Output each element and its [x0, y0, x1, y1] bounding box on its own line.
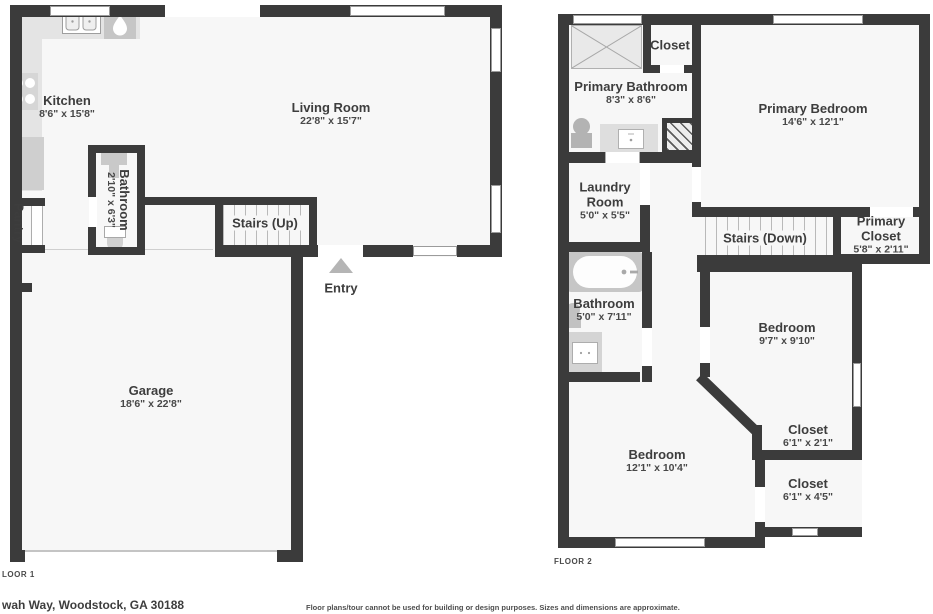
room-name: Closet — [783, 422, 833, 437]
window — [50, 6, 110, 16]
room-dims: 6'1" x 4'5" — [783, 491, 833, 504]
room-dims: 12'1" x 10'4" — [626, 462, 688, 475]
bathroom-sink-icon — [101, 152, 127, 165]
wall — [10, 283, 32, 292]
closet-door-opening — [755, 487, 765, 522]
room-dims: 14'6" x 12'1" — [758, 116, 867, 129]
window — [773, 15, 863, 24]
room-label-laundry: Laundry Room 5'0" x 5'5" — [566, 180, 644, 223]
room-label-bathroom-1: Bathroom 2'10" x 6'3" — [104, 169, 132, 230]
primary-bathroom-door-opening — [605, 152, 640, 163]
property-address: wah Way, Woodstock, GA 30188 — [2, 598, 184, 612]
bathroom-door-opening — [89, 197, 97, 227]
room-name: Stairs (Up) — [229, 216, 301, 231]
room-dims: 5'0" x 7'11" — [573, 311, 634, 324]
closet-bottom-door — [792, 528, 818, 536]
room-name: Primary Bedroom — [758, 101, 867, 116]
window — [350, 6, 445, 16]
room-label-bathroom-2: Bathroom 5'0" x 7'11" — [573, 296, 634, 324]
room-dims: 6'1" x 2'1" — [783, 437, 833, 450]
room-name: Bedroom — [626, 447, 688, 462]
room-dims: 8'6" x 15'8" — [39, 108, 95, 121]
wall — [558, 14, 569, 548]
window — [491, 185, 501, 233]
shower-icon — [571, 25, 642, 69]
wall — [697, 262, 862, 272]
wall — [558, 152, 605, 163]
room-label-closet-bottom: Closet 6'1" x 4'5" — [783, 476, 833, 504]
wall — [558, 242, 650, 252]
room-label-stairs-up: Stairs (Up) — [229, 216, 301, 231]
room-name: Closet — [783, 476, 833, 491]
garage-door — [25, 550, 277, 562]
toilet-base — [571, 133, 592, 148]
bedroom-door-opening — [700, 327, 710, 363]
bathroom2-sink-icon — [568, 332, 602, 372]
refrigerator-icon — [21, 137, 44, 190]
room-name: Bathroom — [573, 296, 634, 311]
room-label-primary-closet: Primary Closet 5'8" x 2'11" — [841, 214, 921, 257]
window — [615, 538, 705, 547]
room-dims: 5'8" x 2'11" — [841, 244, 921, 257]
room-name: Bedroom — [758, 320, 815, 335]
room-name: Kitchen — [39, 93, 95, 108]
room-label-pantry: Pantry — [12, 203, 27, 243]
room-name: Living Room — [292, 100, 371, 115]
vanity-sink-icon — [618, 129, 644, 149]
room-label-primary-bathroom: Primary Bathroom 8'3" x 8'6" — [574, 79, 687, 107]
room-label-bedroom-mid: Bedroom 9'7" x 9'10" — [758, 320, 815, 348]
window — [573, 15, 642, 24]
wall — [88, 145, 96, 197]
room-name: Stairs (Down) — [720, 231, 810, 246]
wall — [692, 14, 701, 167]
wall — [700, 272, 710, 327]
floor1-caption: LOOR 1 — [2, 570, 35, 579]
window — [853, 363, 861, 407]
wall — [642, 366, 652, 382]
wall — [642, 252, 652, 328]
wall — [143, 197, 317, 205]
room-dims: 22'8" x 15'7" — [292, 115, 371, 128]
room-name: Pantry — [12, 203, 27, 243]
window — [165, 5, 260, 17]
wall — [88, 247, 145, 255]
wall — [10, 245, 45, 253]
pantry-door-opening — [31, 206, 43, 245]
room-name: Garage — [120, 383, 182, 398]
room-dims: 18'6" x 22'8" — [120, 398, 182, 411]
room-label-living-room: Living Room 22'8" x 15'7" — [292, 100, 371, 128]
wall — [215, 197, 223, 253]
wall — [558, 372, 640, 382]
floor2-caption: FLOOR 2 — [554, 557, 592, 566]
front-door-opening — [318, 245, 363, 257]
room-dims: 8'3" x 8'6" — [574, 94, 687, 107]
room-name: Primary Bathroom — [574, 79, 687, 94]
wall — [457, 245, 502, 257]
room-name: Primary Closet — [841, 214, 921, 244]
wall — [640, 152, 701, 163]
entry-arrow-icon — [329, 258, 353, 273]
wall — [752, 450, 862, 460]
entry-label: Entry — [324, 281, 357, 296]
window — [413, 246, 457, 256]
room-label-closet-top: Closet — [650, 38, 690, 53]
primary-bedroom-door-opening — [692, 167, 701, 202]
room-name: Entry — [324, 281, 357, 296]
room-label-stairs-down: Stairs (Down) — [720, 231, 810, 246]
wall — [309, 197, 317, 253]
closet-door-opening — [660, 65, 684, 73]
room-label-closet-mid: Closet 6'1" x 2'1" — [783, 422, 833, 450]
room-label-bedroom-bottom: Bedroom 12'1" x 10'4" — [626, 447, 688, 475]
room-dims: 9'7" x 9'10" — [758, 335, 815, 348]
threshold — [45, 249, 88, 250]
room-label-primary-bedroom: Primary Bedroom 14'6" x 12'1" — [758, 101, 867, 129]
threshold — [145, 249, 213, 250]
disclaimer-text: Floor plans/tour cannot be used for buil… — [306, 603, 680, 612]
wall — [291, 245, 303, 562]
window — [491, 28, 501, 72]
room-label-garage: Garage 18'6" x 22'8" — [120, 383, 182, 411]
bathtub-icon — [567, 252, 643, 292]
bathroom2-door-opening — [642, 328, 652, 366]
floor-plan: Kitchen 8'6" x 15'8" Living Room 22'8" x… — [0, 0, 933, 614]
wall — [852, 262, 862, 460]
room-dims: 5'0" x 5'5" — [566, 210, 644, 223]
wall — [755, 460, 765, 487]
room-name: Laundry Room — [566, 180, 644, 210]
room-label-kitchen: Kitchen 8'6" x 15'8" — [39, 93, 95, 121]
wall — [137, 145, 145, 255]
room-dims: 2'10" x 6'3" — [104, 169, 117, 230]
room-name: Bathroom — [117, 169, 132, 230]
room-name: Closet — [650, 38, 690, 53]
wall — [363, 245, 413, 257]
